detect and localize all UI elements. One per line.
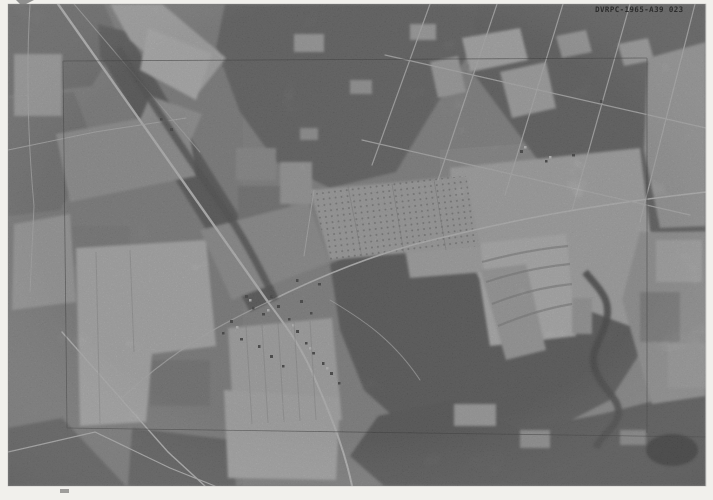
film-grain-overlay [8, 4, 706, 486]
photo-sheet: DVRPC-1965-A39 023 [0, 0, 713, 500]
photo-stamp-label: DVRPC-1965-A39 023 [595, 5, 705, 17]
aerial-photo [0, 0, 713, 500]
margin-tick-mark [60, 489, 69, 493]
